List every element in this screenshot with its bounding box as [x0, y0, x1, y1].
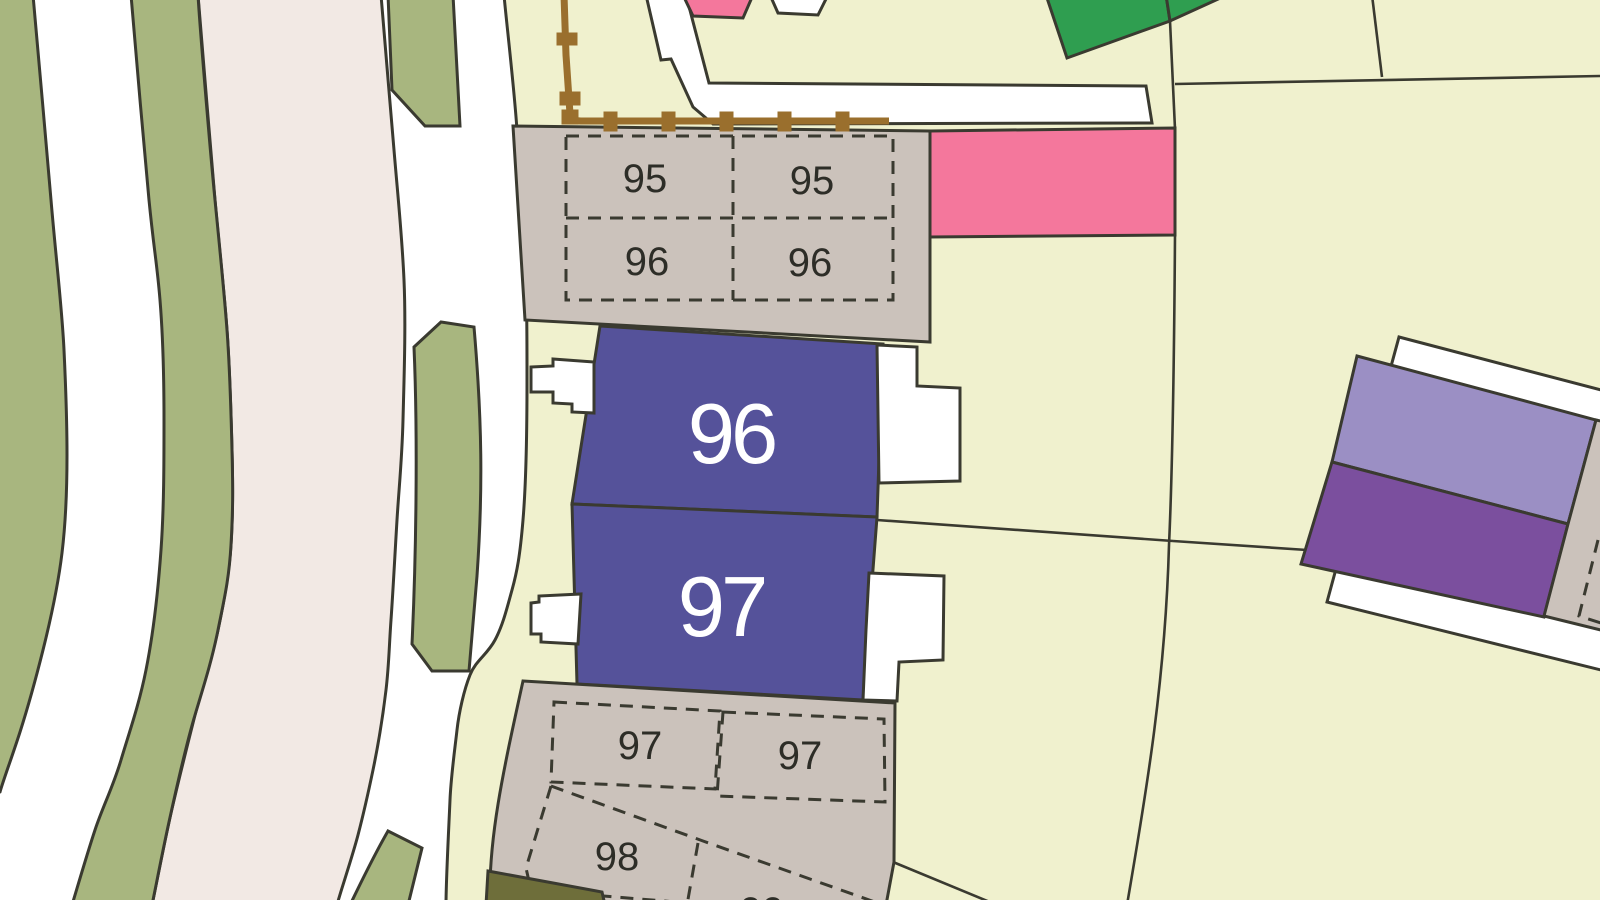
svg-text:95: 95: [623, 157, 668, 201]
svg-text:96: 96: [788, 241, 833, 285]
svg-text:96: 96: [688, 387, 775, 482]
svg-text:96: 96: [625, 240, 670, 284]
svg-text:97: 97: [778, 734, 823, 778]
svg-text:97: 97: [618, 724, 663, 768]
svg-text:98: 98: [595, 835, 640, 879]
svg-text:97: 97: [678, 560, 765, 655]
svg-text:99: 99: [740, 890, 785, 900]
svg-text:95: 95: [790, 159, 835, 203]
